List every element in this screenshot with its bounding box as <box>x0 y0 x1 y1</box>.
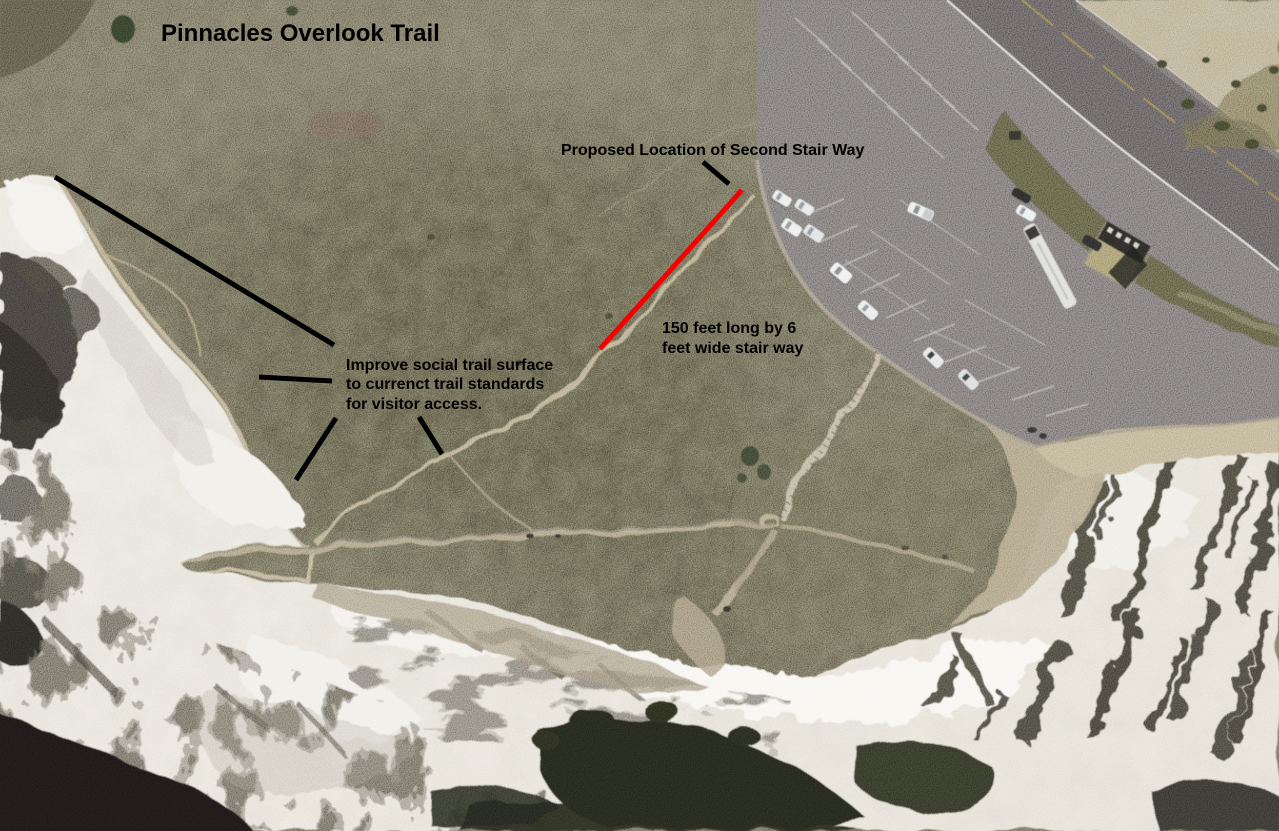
svg-text:150 feet long by 6: 150 feet long by 6 <box>662 320 796 337</box>
svg-text:Improve social trail surface: Improve social trail surface <box>346 357 553 374</box>
svg-text:feet wide stair way: feet wide stair way <box>662 340 803 357</box>
svg-text:Proposed Location of Second St: Proposed Location of Second Stair Way <box>561 142 865 159</box>
svg-text:to currenct trail standards: to currenct trail standards <box>346 376 544 393</box>
svg-text:for visitor access.: for visitor access. <box>346 396 482 413</box>
svg-text:Pinnacles Overlook Trail: Pinnacles Overlook Trail <box>161 20 440 47</box>
